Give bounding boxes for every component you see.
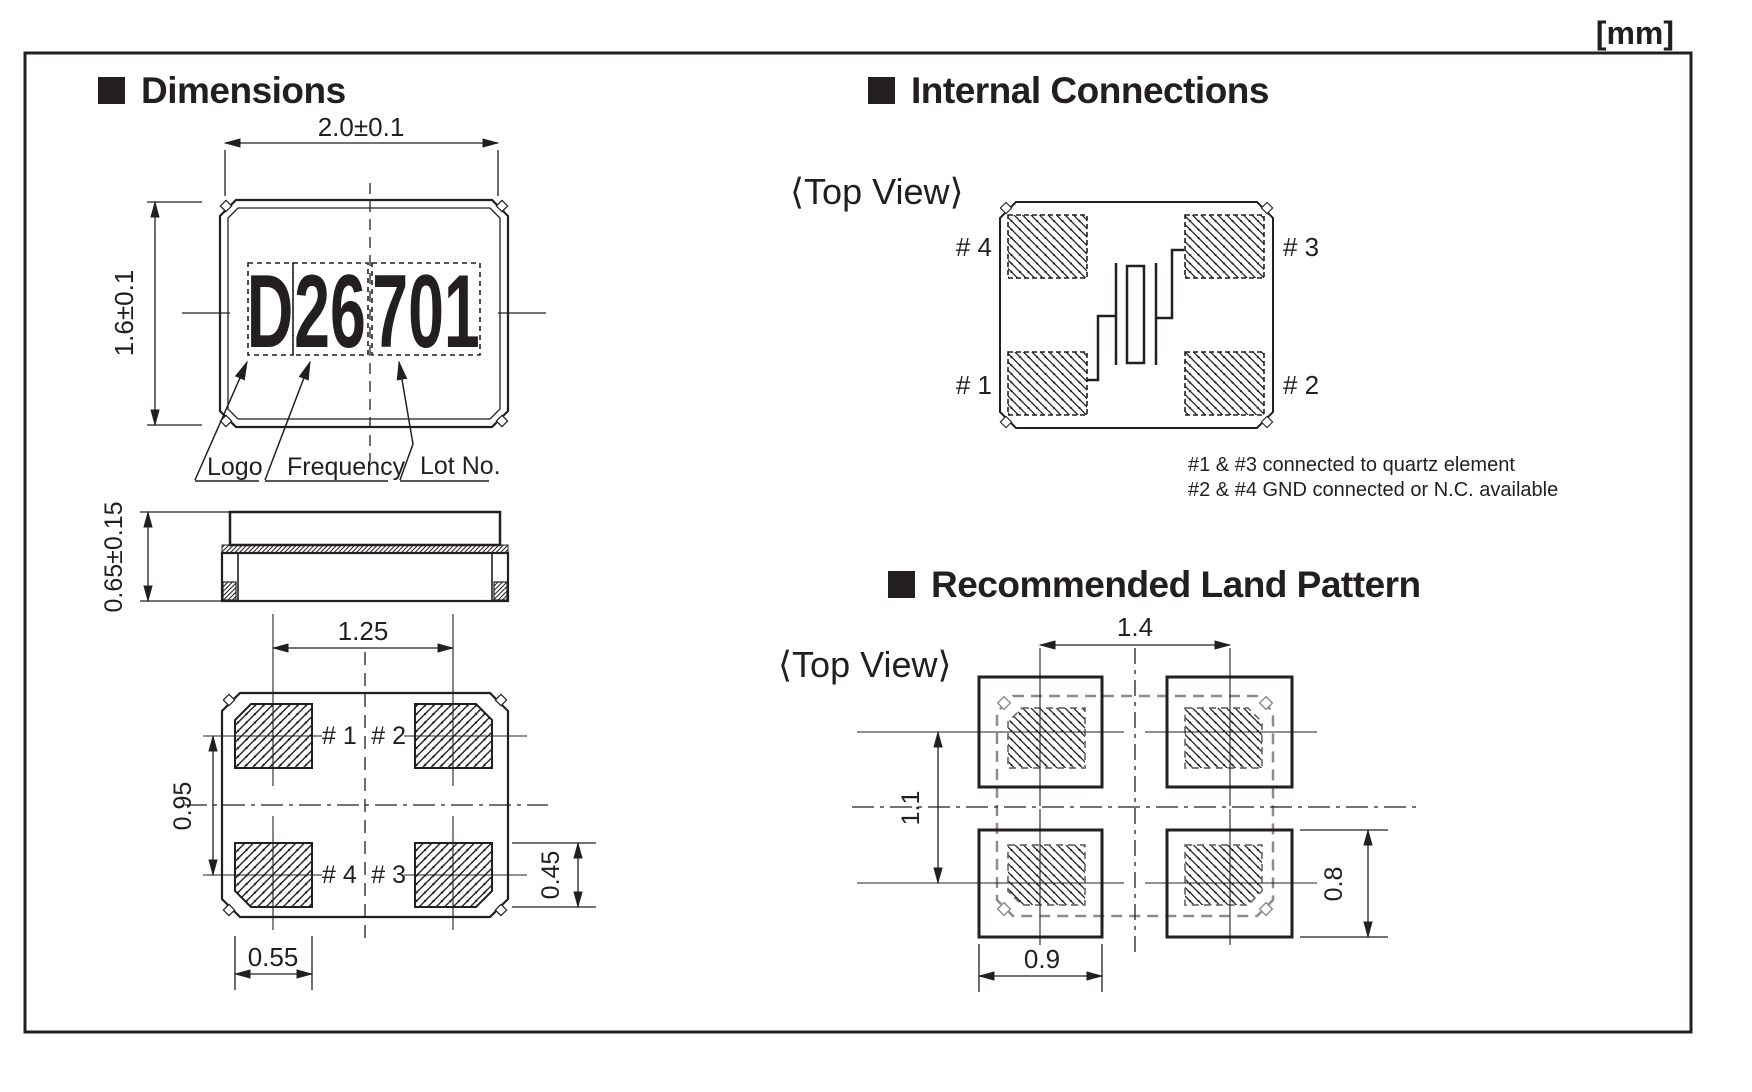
internal-package [1000, 202, 1273, 428]
side-view [140, 512, 508, 601]
label-logo: Logo [207, 453, 263, 481]
internal-view-label: ⟨Top View⟩ [790, 171, 964, 212]
label-frequency: Frequency [287, 453, 406, 481]
marking-lot: 701 [372, 254, 480, 369]
body [222, 553, 508, 601]
terminal-right [494, 582, 507, 600]
crystal-body [1127, 266, 1144, 363]
pad-4 [1008, 215, 1087, 278]
land-view-label: ⟨Top View⟩ [778, 644, 952, 685]
pin-label-2: # 2 [1283, 370, 1319, 400]
package-marking: D 26 701 [247, 254, 480, 369]
dim-thickness: 0.65±0.15 [100, 501, 128, 612]
component-pad-top-right [1185, 708, 1262, 768]
pin-label-4: # 4 [956, 232, 992, 262]
wire-to-pad1 [1087, 316, 1116, 380]
dim-width: 2.0±0.1 [318, 112, 405, 142]
dim-pad-pitch-y: 0.95 [169, 782, 197, 831]
pad-1 [1008, 352, 1087, 415]
section-bullet [868, 77, 895, 104]
lid [230, 512, 500, 545]
dimensions-section: Dimensions D 26 701 [98, 70, 596, 990]
seal-strip [222, 545, 508, 553]
pad-2 [1185, 352, 1264, 415]
pad-label-3: # 3 [371, 861, 406, 889]
pin-label-1: # 1 [956, 370, 992, 400]
label-lot: Lot No. [420, 452, 501, 480]
pad-label-1: # 1 [322, 722, 357, 750]
dim-pad-width: 0.55 [248, 942, 299, 972]
connection-note-2: #2 & #4 GND connected or N.C. available [1188, 479, 1558, 501]
dim-height: 1.6±0.1 [109, 270, 139, 357]
bottom-view [185, 614, 596, 990]
dim-land-pad-height: 0.8 [1320, 867, 1348, 902]
drawing-canvas: [mm] Dimensions D 26 [0, 0, 1752, 1092]
land-title: Recommended Land Pattern [931, 564, 1421, 605]
terminal-left [223, 582, 236, 600]
component-pad-bottom-right [1185, 845, 1262, 905]
section-bullet [98, 77, 125, 104]
pad-label-4: # 4 [322, 861, 357, 889]
section-bullet [888, 571, 915, 598]
dim-land-pitch-y: 1.1 [897, 791, 925, 826]
pin-label-3: # 3 [1283, 232, 1319, 262]
dim-pad-pitch-x: 1.25 [338, 616, 389, 646]
internal-connections-section: Internal Connections ⟨Top View⟩ [790, 70, 1558, 501]
dimensions-title: Dimensions [141, 70, 346, 111]
land-pattern-section: Recommended Land Pattern ⟨Top View⟩ [778, 564, 1421, 992]
datasheet-page: [mm] Dimensions D 26 [0, 0, 1752, 1092]
bottom-view-dimensions [213, 648, 596, 990]
pad-3 [1185, 215, 1264, 278]
marking-logo: D [247, 254, 294, 369]
internal-title: Internal Connections [911, 70, 1269, 111]
dim-land-pitch-x: 1.4 [1117, 612, 1153, 642]
marking-frequency: 26 [294, 254, 366, 369]
component-pad-top-left [1008, 708, 1085, 768]
pad-label-2: # 2 [371, 722, 406, 750]
wire-to-pad3 [1156, 250, 1184, 318]
unit-label: [mm] [1596, 15, 1674, 51]
quartz-element [1087, 250, 1184, 380]
dim-land-pad-width: 0.9 [1024, 944, 1060, 974]
connection-note-1: #1 & #3 connected to quartz element [1188, 454, 1515, 476]
dim-pad-height: 0.45 [537, 851, 565, 900]
land-pattern [852, 645, 1420, 992]
component-pad-bottom-left [1008, 845, 1085, 905]
